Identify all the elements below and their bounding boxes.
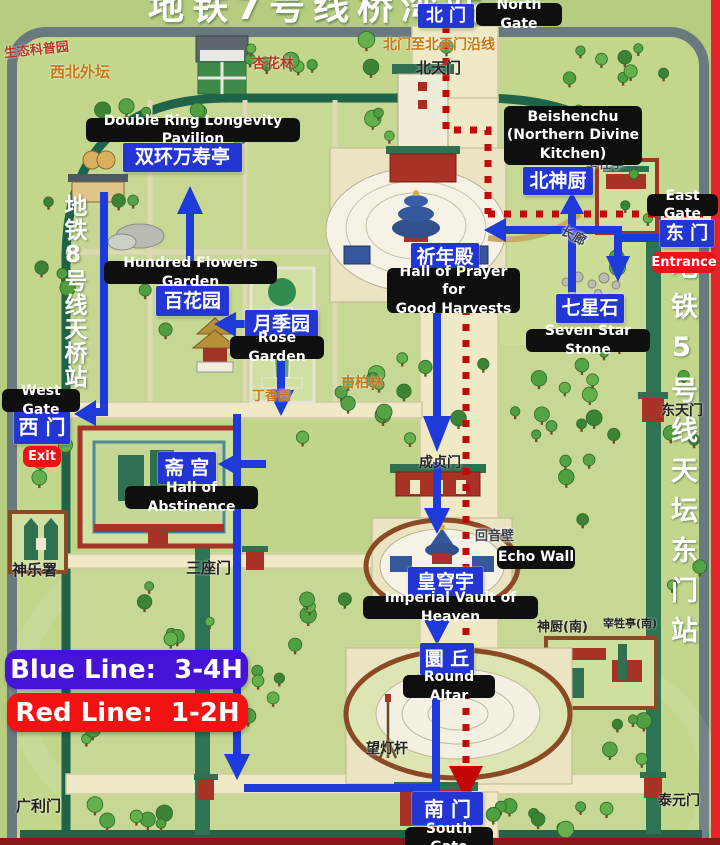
school-building — [196, 36, 248, 94]
lilac-garden-label: 丁香园 — [252, 390, 291, 404]
seven-star-label-zh: 七星石 — [556, 294, 624, 323]
south-gate-label-en: South Gate — [405, 827, 493, 845]
exit-badge: Exit — [23, 446, 61, 467]
metro-line8-station-label: 地铁8号线天桥站 — [56, 194, 90, 389]
east-gate-label-zh: 东 门 — [660, 220, 714, 247]
echo-wall-zh-label: 回音壁 — [475, 530, 514, 544]
entrance-badge: Entrance — [652, 252, 716, 273]
east-heaven-gate-label: 东天门 — [661, 404, 703, 419]
poster-edge-bottom — [0, 838, 720, 845]
chengzhen-gate-label: 成贞门 — [419, 456, 461, 471]
sanzuo-gate-label: 三座门 — [186, 560, 231, 577]
east-gate-label-en: East Gate — [647, 194, 718, 216]
apricot-forest-label: 杏花林 — [252, 57, 294, 72]
rose-garden-label-en: Rose Garden — [230, 336, 324, 359]
seven-star-label-en: Seven Star Stone — [526, 329, 650, 352]
temple-of-heaven-tour-map: 地铁7号线桥湾站 地铁8号线天桥站 地铁5号线天坛东门站 北 门 North G… — [0, 0, 720, 845]
abstinence-label-en: Hall of Abstinence — [125, 486, 258, 509]
double-ring-pavilion-label-en: Double Ring Longevity Pavilion — [86, 118, 300, 142]
beishenchu-label-en: Beishenchu (Northern Divine Kitchen) — [504, 106, 642, 165]
legend-red-line: Red Line: 1-2H — [7, 693, 248, 732]
round-altar-label-en: Round Altar — [403, 675, 495, 698]
prayer-hall-label-en: Hall of Prayer for Good Harvests — [387, 268, 520, 313]
west-gate-label-en: West Gate — [2, 389, 80, 412]
taiyuan-gate-label: 泰元门 — [658, 794, 700, 809]
north-gate-route-label: 北门至北天门沿线 — [383, 38, 495, 53]
divine-kitchen-south-label: 神厨(南) — [537, 621, 588, 635]
divine-music-office-label: 神乐署 — [12, 562, 57, 579]
lamp-pole-label: 望灯杆 — [366, 742, 408, 757]
legend-blue-line: Blue Line: 3-4H — [5, 650, 248, 689]
north-heaven-gate-label: 北天门 — [416, 60, 461, 77]
nw-outer-altar-label: 西北外坛 — [50, 64, 110, 81]
north-gate-label-en: North Gate — [476, 3, 562, 26]
echo-wall-label-en: Echo Wall — [497, 546, 575, 569]
north-gate-label-zh: 北 门 — [418, 4, 474, 28]
hundred-flowers-label-en: Hundred Flowers Garden — [104, 261, 277, 284]
imperial-vault-label-en: Imperial Vault of Heaven — [363, 596, 538, 619]
metro-line5-station-label: 地铁5号线天坛东门站 — [662, 252, 701, 656]
beishenchu-label-zh: 北神厨 — [523, 167, 593, 195]
poster-edge-right — [711, 0, 720, 845]
ancient-cypress-label: 古柏林 — [341, 376, 383, 391]
slaughter-pavilion-south-label: 宰牲亭(南) — [603, 618, 657, 630]
guangli-gate-label: 广利门 — [16, 798, 61, 815]
